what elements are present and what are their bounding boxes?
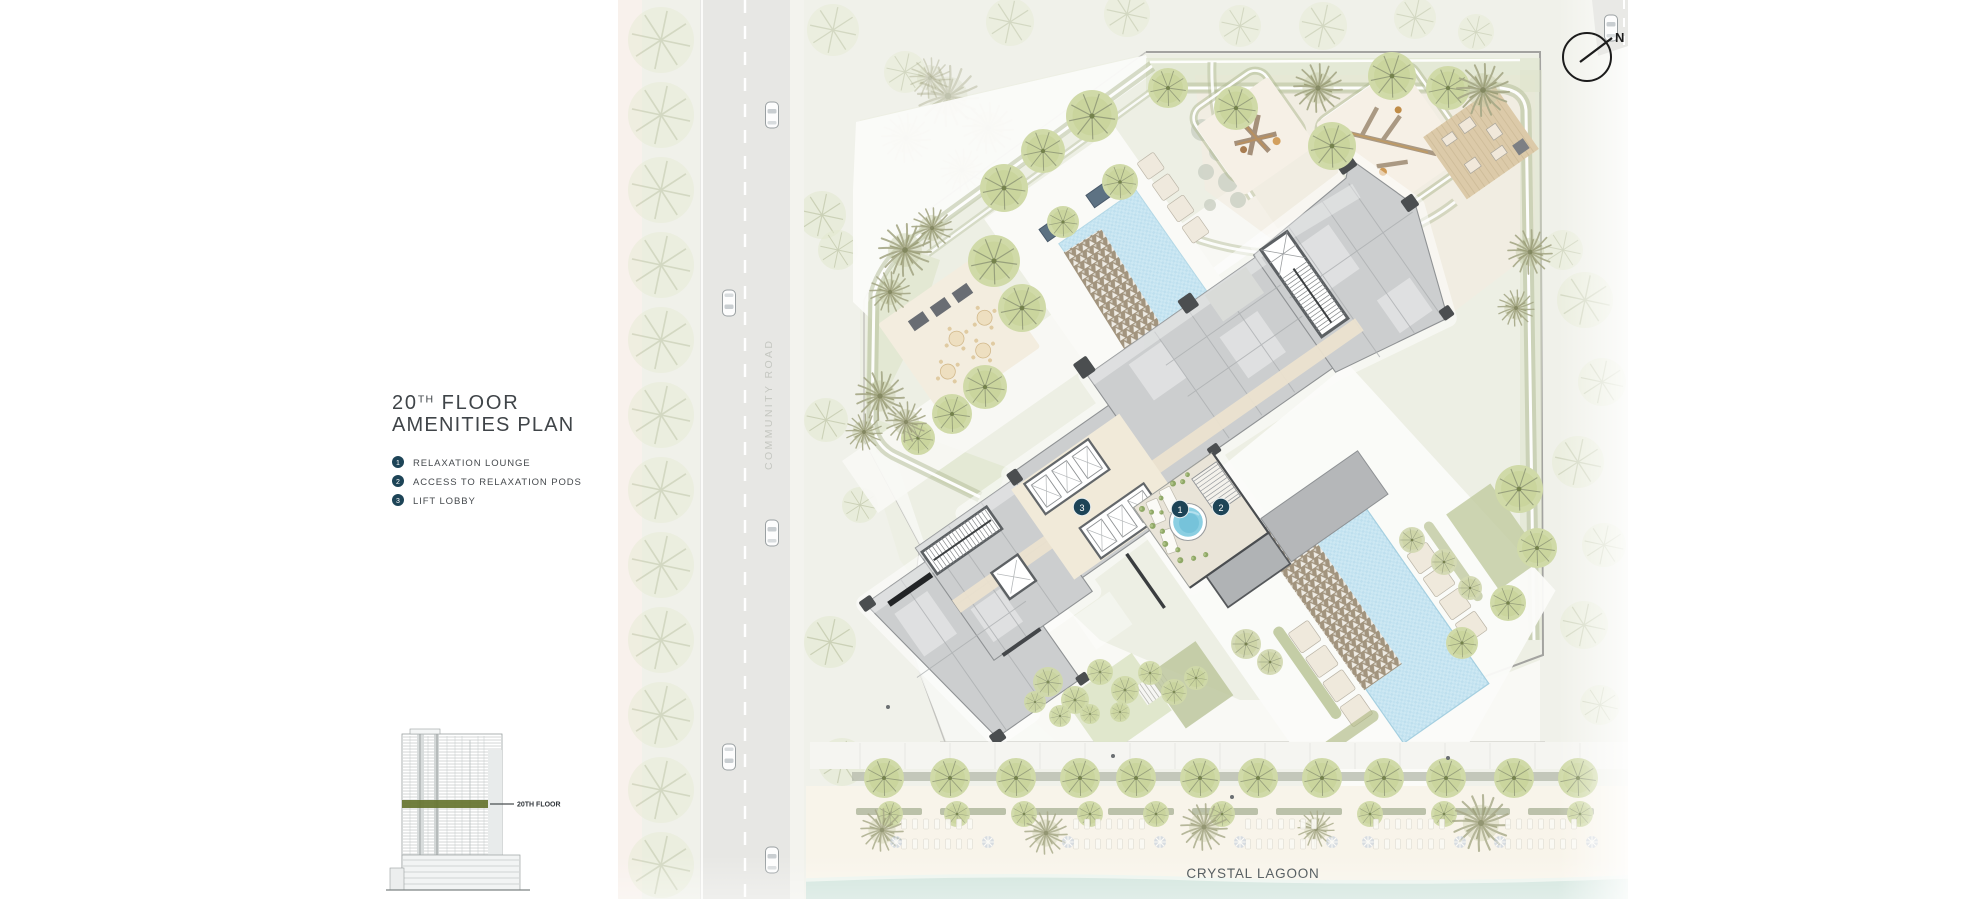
svg-text:ACCESS TO RELAXATION PODS: ACCESS TO RELAXATION PODS [413,477,582,488]
svg-text:2: 2 [396,479,400,486]
svg-text:20TH FLOOR: 20TH FLOOR [392,392,520,414]
svg-text:20TH FLOOR: 20TH FLOOR [517,802,561,809]
svg-text:N: N [1615,30,1624,45]
svg-text:RELAXATION LOUNGE: RELAXATION LOUNGE [413,458,531,469]
svg-text:COMMUNITY ROAD: COMMUNITY ROAD [763,339,775,470]
svg-text:1: 1 [1177,505,1182,515]
svg-text:3: 3 [1079,503,1084,513]
svg-text:2: 2 [1218,503,1223,513]
svg-text:3: 3 [396,498,400,505]
svg-text:1: 1 [396,460,400,467]
svg-text:AMENITIES PLAN: AMENITIES PLAN [392,414,574,436]
svg-text:LIFT LOBBY: LIFT LOBBY [413,496,476,507]
